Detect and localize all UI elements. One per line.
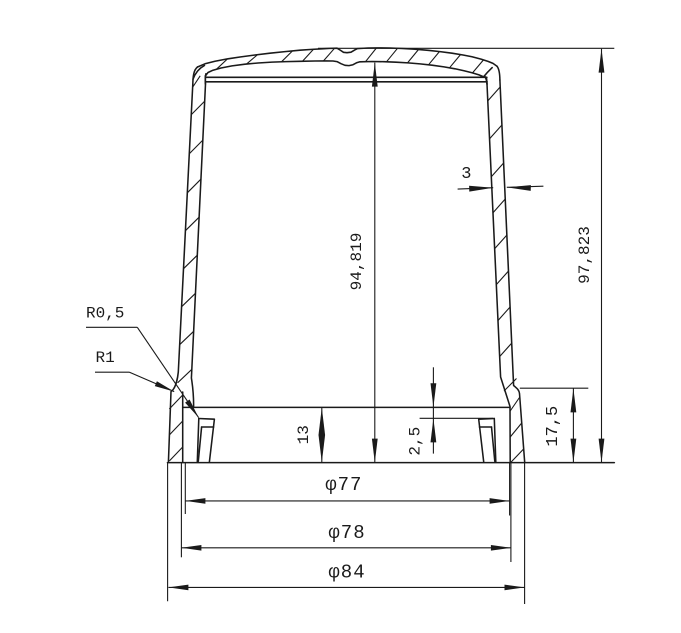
svg-text:φ77: φ77 [325,474,362,496]
svg-text:R1: R1 [96,349,115,367]
svg-text:φ84: φ84 [328,562,365,584]
svg-text:94,819: 94,819 [348,233,366,291]
svg-text:2,5: 2,5 [407,427,425,456]
svg-text:φ78: φ78 [328,522,365,544]
svg-text:13: 13 [295,425,313,444]
svg-text:3: 3 [461,165,471,184]
svg-text:97,823: 97,823 [576,226,594,284]
svg-text:R0,5: R0,5 [86,305,124,323]
svg-text:17,5: 17,5 [544,406,563,447]
